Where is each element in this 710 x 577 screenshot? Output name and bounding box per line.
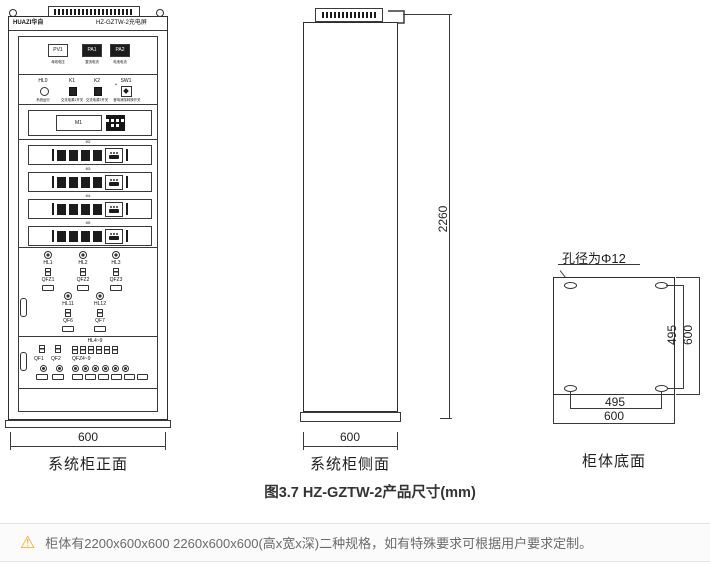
meter-pa1: PA1 [82,44,102,57]
section-divider [18,104,158,105]
indicator-lamp-icon [96,292,104,300]
indicator-lamp-icon [79,251,87,259]
breaker-column-hl11: HL11 QF6 [53,292,83,332]
warning-icon: ⚠ [20,534,35,551]
vent-grille [54,9,132,15]
side-top-vent [315,8,383,22]
monitor-keypad-icon [106,115,125,131]
k2-switch-icon [94,87,102,96]
header-divider [9,30,167,31]
indicator-lamp-icon [44,251,52,259]
indicator-lamp-icon [64,292,72,300]
hl4-9-switch-row [72,346,118,354]
module-handle-icon [52,149,54,161]
dim-line [10,446,166,447]
breaker-column-hl3: HL3 QFZ3 [101,251,131,291]
dim-ext-line [661,392,662,409]
section-divider [18,336,158,337]
breaker-window-icon [42,285,54,291]
lamp-id: HL1 [43,261,52,266]
qf1-window-icon [36,374,48,380]
side-cabinet-base [300,412,401,422]
front-cabinet-base [5,420,171,428]
model-label: HZ-GZTW-2充电屏 [96,20,147,26]
module-display-icon [105,202,123,217]
hl-range-label: HL4~9 [72,339,118,344]
module-row-label: M5 [75,221,101,224]
dim-ext-line [10,432,11,450]
qfz4-9-window-row [72,374,148,380]
breaker-window-icon [77,285,89,291]
bottom-hdim-inner: 495 [585,396,645,408]
breaker-column-hl2: HL2 QFZ2 [68,251,98,291]
dim-line [553,423,675,424]
section-divider [18,247,158,248]
qf1-switch-icon [39,345,45,353]
dim-ext-line [668,388,684,389]
figure-canvas: HUAZI华自 HZ-GZTW-2充电屏 PV1 PA1 PA2 母线电压 整流… [0,0,710,577]
note-bar: ⚠ 柜体有2200x600x600 2260x600x600(高x宽x深)二种规… [0,523,710,562]
dim-ext-line [397,432,398,450]
breaker-switch-icon [97,309,103,317]
mounting-hole-icon [564,282,577,289]
dim-ext-line [403,14,452,15]
lamp-id: HL2 [78,261,87,266]
qf2-window-icon [52,374,64,380]
module-row-label: M3 [75,167,101,170]
qf1-lamp-icon [40,365,47,372]
module-handle-icon [126,203,128,215]
bottom-hdim-outer: 600 [584,410,644,422]
rectifier-module-row [28,226,152,246]
lamp-id: HL3 [111,261,120,266]
bottom-vdim-outer: 600 [682,313,694,357]
monitor-display: M1 [56,115,102,131]
front-width-dim: 600 [58,431,118,443]
hl4-9-lamp-row [72,365,129,372]
breaker-window-icon [110,285,122,291]
breaker-switch-icon [45,268,51,276]
module-handle-icon [126,176,128,188]
vent-grille [322,12,376,18]
module-handle-icon [52,176,54,188]
breaker-switch-icon [65,309,71,317]
dim-ext-line [440,418,452,419]
bottom-vdim-outer-wrap: 600 [666,329,710,343]
dim-line [303,446,398,447]
module-handle-icon [52,230,54,242]
dim-ext-line [553,395,554,423]
qf2-id: QF2 [51,357,61,362]
module-display-icon [105,148,123,163]
k2-id: K2 [82,79,112,84]
brand-label: HUAZI华自 [13,20,43,26]
lamp-id: HL11 [62,302,74,307]
breaker-window-icon [94,326,106,332]
rectifier-module-row [28,199,152,219]
module-handle-icon [126,149,128,161]
dim-ext-line [676,277,700,278]
module-display-icon [105,175,123,190]
module-handle-icon [52,203,54,215]
breaker-id: QF7 [95,319,105,324]
front-view-caption: 系统柜正面 [18,453,158,474]
breaker-window-icon [62,326,74,332]
rectifier-module-row [28,172,152,192]
module-display-icon [105,229,123,244]
meter-pa2: PA2 [110,44,130,57]
breaker-switch-icon [113,268,119,276]
meter-pa2-label: 电池电流 [108,60,132,63]
hl0-id: HL0 [28,79,58,84]
panel-handle-icon [20,352,27,371]
section-divider [18,388,158,389]
note-text: 柜体有2200x600x600 2260x600x600(高x宽x深)二种规格，… [45,533,592,552]
figure-caption: 图3.7 HZ-GZTW-2产品尺寸(mm) [180,481,560,502]
lamp-id: HL12 [94,302,106,307]
qfz-range-label: QFZ4~9 [72,357,90,362]
mounting-hole-icon [564,385,577,392]
dim-ext-line [674,395,675,423]
module-row-label: M4 [75,194,101,197]
qf1-id: QF1 [34,357,44,362]
mounting-hole-icon [655,385,668,392]
hl0-lamp-icon [40,87,49,96]
side-cabinet-body [303,22,398,412]
monitor-module: M1 [28,110,152,136]
side-width-dim: 600 [320,431,380,443]
breaker-column-hl1: HL1 QFZ1 [33,251,63,291]
panel-handle-icon [20,298,27,317]
rectifier-module-row [28,145,152,165]
dim-ext-line [666,285,684,286]
k1-switch-icon [69,87,77,96]
bottom-view-caption: 柜体底面 [544,450,684,471]
sw1-label: 音响消除转换开关 [113,98,139,101]
side-height-dim: 2260 [437,197,449,241]
breaker-switch-icon [80,268,86,276]
breaker-id: QF6 [63,319,73,324]
side-view-caption: 系统柜侧面 [280,453,420,474]
side-height-dim-wrap: 2260 [421,213,465,227]
k1-label: 交流电源1开关 [59,98,85,101]
meter-pa1-label: 整流电流 [80,60,104,63]
leader-underline [558,264,640,265]
k2-label: 交流电源2开关 [84,98,110,101]
breaker-id: QFZ2 [77,278,90,283]
section-divider [18,74,158,75]
qf2-lamp-icon [56,365,63,372]
module-row-label: M2 [75,140,101,143]
meter-pv1: PV1 [48,44,68,57]
module-handle-icon [126,230,128,242]
hl0-label: 系统运行 [30,98,56,101]
dim-ext-line [165,432,166,450]
dim-ext-line [676,394,700,395]
sw1-rotary-switch-icon [121,86,710,97]
qf2-switch-icon [55,345,61,353]
dim-ext-line [570,392,571,409]
breaker-column-hl12: HL12 QF7 [85,292,115,332]
dim-ext-line [303,432,304,450]
meter-pv1-label: 母线电压 [46,60,70,63]
breaker-id: QFZ1 [42,278,55,283]
indicator-lamp-icon [112,251,120,259]
breaker-id: QFZ3 [110,278,123,283]
